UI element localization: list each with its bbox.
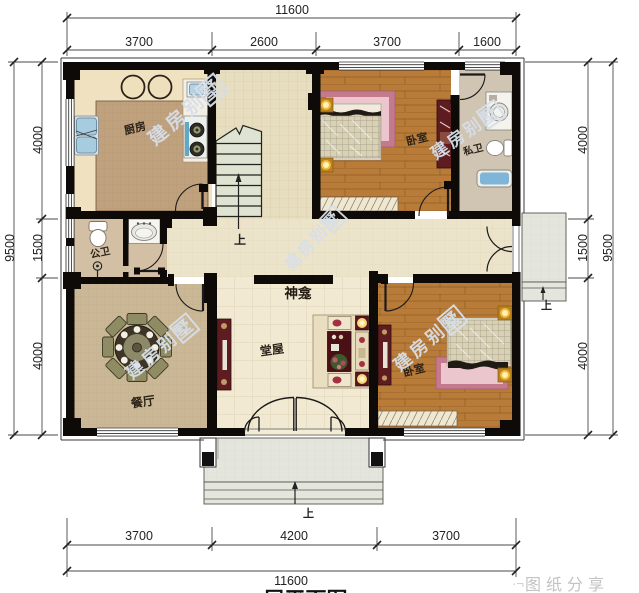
svg-text:上: 上 [234,232,246,247]
svg-text:4200: 4200 [280,529,308,543]
svg-text:11600: 11600 [275,3,309,17]
svg-text:3700: 3700 [125,529,153,543]
svg-text:9500: 9500 [3,234,17,262]
svg-text:图纸分享: 图纸分享 [525,576,609,593]
svg-text:一层平面图: 一层平面图 [243,589,348,593]
svg-text:2600: 2600 [250,35,278,49]
svg-text:3700: 3700 [373,35,401,49]
svg-text:4000: 4000 [31,342,45,370]
svg-text:·¬: ·¬ [512,576,524,591]
svg-text:4000: 4000 [576,342,590,370]
svg-text:1600: 1600 [473,35,501,49]
svg-text:4000: 4000 [576,126,590,154]
svg-text:上: 上 [303,506,314,520]
svg-text:9500: 9500 [601,234,615,262]
svg-text:3700: 3700 [125,35,153,49]
svg-text:1500: 1500 [576,234,590,262]
svg-text:4000: 4000 [31,126,45,154]
svg-text:神龛: 神龛 [285,285,312,301]
svg-text:3700: 3700 [432,529,460,543]
svg-text:11600: 11600 [274,574,308,588]
svg-text:1500: 1500 [31,234,45,262]
svg-text:上: 上 [541,298,552,312]
